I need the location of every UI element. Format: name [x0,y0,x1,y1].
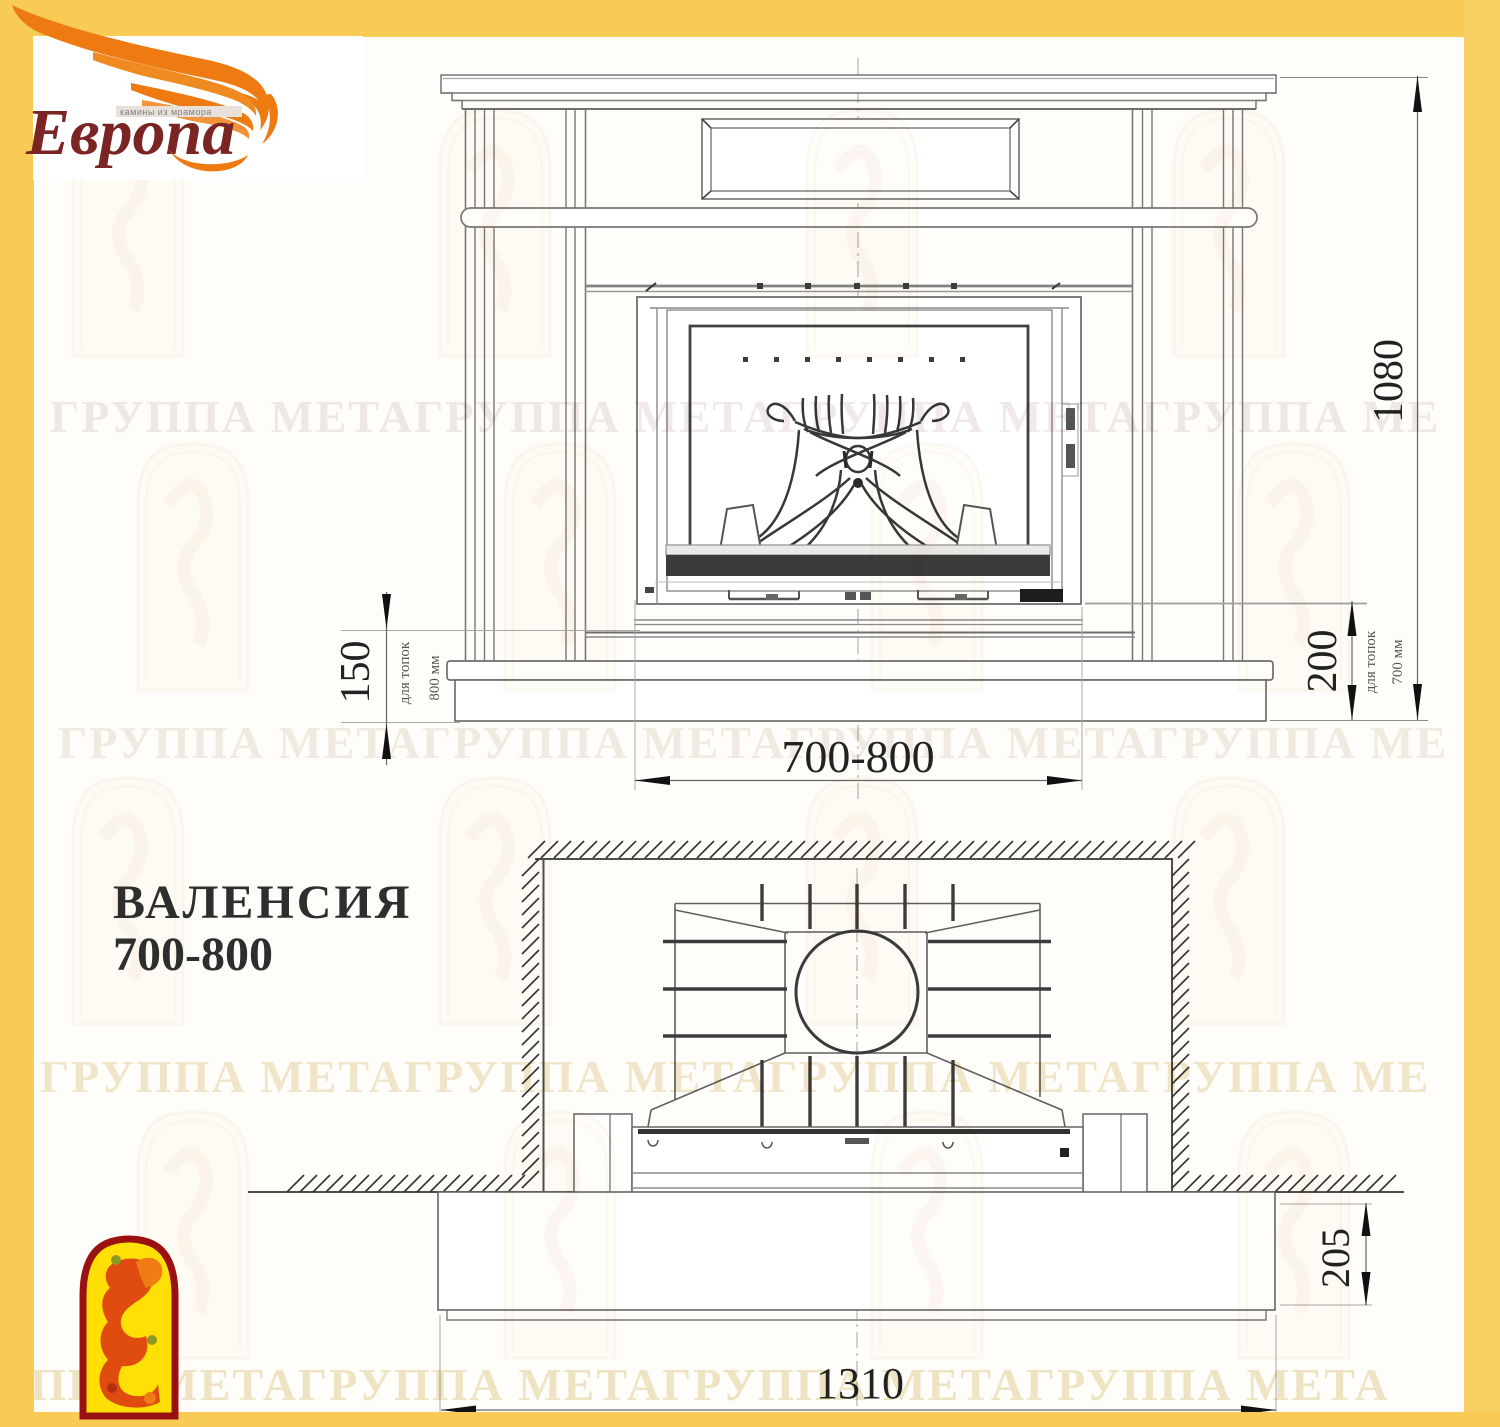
svg-text:700-800: 700-800 [113,928,273,981]
svg-text:ВАЛЕНСИЯ: ВАЛЕНСИЯ [113,876,412,929]
svg-text:для топок: для топок [397,641,413,704]
svg-text:700 мм: 700 мм [1390,639,1406,685]
svg-text:ГРУППА МЕТАГРУППА МЕТАГРУППА М: ГРУППА МЕТАГРУППА МЕТАГРУППА МЕТАГРУППА … [50,391,1440,442]
svg-text:ППА МЕТАГРУППА МЕТАГРУППА МЕТА: ППА МЕТАГРУППА МЕТАГРУППА МЕТАГРУППА МЕТ… [30,1359,1390,1410]
svg-text:800 мм: 800 мм [427,655,443,701]
svg-text:150: 150 [333,641,379,704]
svg-text:камины из мрамора: камины из мрамора [120,107,212,117]
svg-text:ГРУППА МЕТАГРУППА МЕТАГРУППА М: ГРУППА МЕТАГРУППА МЕТАГРУППА МЕТАГРУППА … [58,717,1448,768]
svg-text:для топок: для топок [1363,630,1379,693]
svg-text:ГРУППА МЕТАГРУППА МЕТАГРУППА М: ГРУППА МЕТАГРУППА МЕТАГРУППА МЕТАГРУППА … [40,1051,1430,1102]
